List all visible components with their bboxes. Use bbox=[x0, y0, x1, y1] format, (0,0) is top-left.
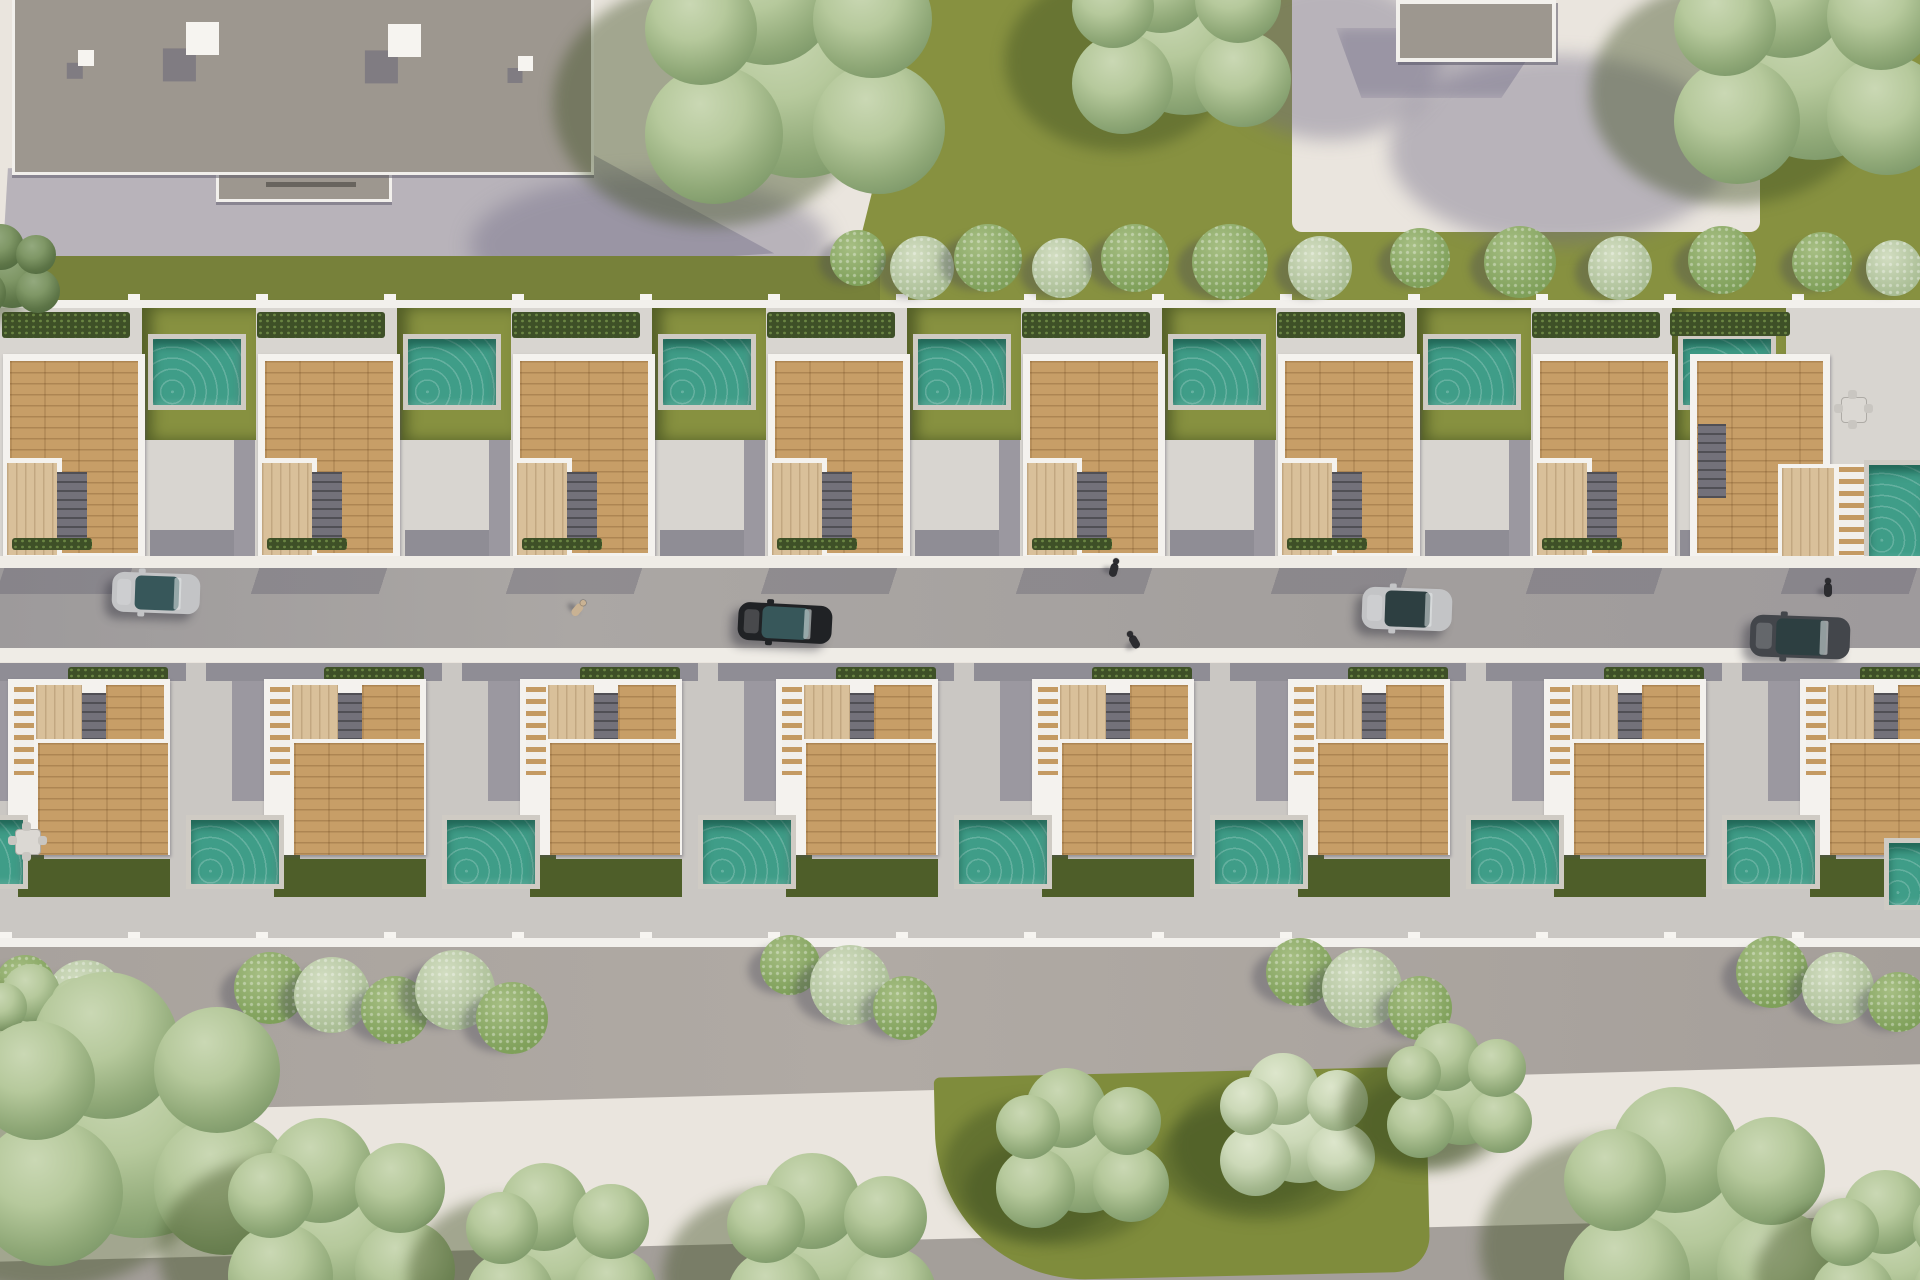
roof-stairs bbox=[1106, 693, 1130, 739]
roof-deck bbox=[546, 739, 680, 855]
roof-deck bbox=[1314, 739, 1448, 855]
villa-house bbox=[3, 354, 145, 560]
tree-foliage bbox=[1564, 1129, 1666, 1231]
tree bbox=[720, 1155, 950, 1280]
tree-foliage bbox=[16, 269, 60, 313]
bush-foliage bbox=[1792, 232, 1852, 292]
bush bbox=[1792, 232, 1852, 292]
garden-grass bbox=[1042, 859, 1194, 897]
tree-foliage bbox=[1811, 1198, 1879, 1266]
tree-foliage bbox=[1093, 1087, 1161, 1155]
swimming-pool bbox=[1722, 815, 1820, 889]
bush bbox=[1588, 236, 1652, 300]
tree-foliage bbox=[16, 235, 56, 275]
hedge-planter bbox=[767, 312, 895, 338]
tree bbox=[0, 225, 67, 335]
driveway bbox=[1170, 530, 1254, 558]
car-mirror bbox=[1390, 583, 1397, 588]
roof-stairs bbox=[1077, 472, 1107, 548]
tree bbox=[460, 1165, 670, 1280]
aerial-site-render bbox=[0, 0, 1920, 1280]
villa-unit-upper bbox=[765, 308, 1020, 560]
pergola bbox=[782, 687, 802, 775]
tree-foliage bbox=[1468, 1089, 1532, 1153]
tree-foliage bbox=[154, 1007, 280, 1133]
garden-grass bbox=[274, 859, 426, 897]
driveway bbox=[660, 530, 744, 558]
roof-stairs bbox=[1618, 693, 1642, 739]
patio-chair bbox=[1834, 404, 1843, 413]
tree-foliage bbox=[996, 1095, 1061, 1160]
pergola bbox=[1550, 687, 1570, 775]
villa-house bbox=[1544, 679, 1706, 855]
roof-deck bbox=[1898, 685, 1920, 739]
tree-foliage bbox=[1093, 1146, 1169, 1222]
villa-unit-upper bbox=[510, 308, 765, 560]
car-hood-highlight bbox=[1367, 594, 1382, 621]
villa-house bbox=[1023, 354, 1165, 560]
pergola bbox=[270, 687, 290, 775]
swimming-pool bbox=[1423, 334, 1521, 410]
car-mirror bbox=[1388, 628, 1395, 633]
tree bbox=[1805, 1172, 1920, 1280]
tree-foliage bbox=[1468, 1039, 1526, 1097]
roof-stairs bbox=[1362, 693, 1386, 739]
car-windshield bbox=[1424, 593, 1432, 627]
tree-foliage bbox=[844, 1176, 927, 1259]
rooftop-vent bbox=[186, 22, 219, 55]
roof-deck bbox=[874, 685, 932, 739]
bush-foliage bbox=[1192, 224, 1268, 300]
roof-stairs bbox=[1874, 693, 1898, 739]
sidewalk-bottom bbox=[0, 648, 1920, 662]
villa-house bbox=[264, 679, 426, 855]
bush bbox=[1288, 236, 1352, 300]
roof-stairs bbox=[567, 472, 597, 548]
villa-unit-upper bbox=[0, 308, 255, 560]
small-building-roof bbox=[1396, 0, 1556, 62]
villa-unit-lower bbox=[0, 663, 186, 947]
villa-unit-lower bbox=[442, 663, 698, 947]
roof-deck bbox=[1642, 685, 1700, 739]
roof-deck bbox=[290, 739, 424, 855]
person-head bbox=[1825, 578, 1831, 584]
patio-chair bbox=[22, 852, 31, 861]
roof-stairs bbox=[57, 472, 87, 548]
pergola bbox=[1038, 687, 1058, 775]
patio-chair bbox=[38, 836, 47, 845]
hedge-planter bbox=[1022, 312, 1150, 338]
bush bbox=[1192, 224, 1268, 300]
garden-grass bbox=[18, 859, 170, 897]
person-head bbox=[1112, 558, 1119, 565]
villa-unit-upper-corner bbox=[1660, 308, 1920, 560]
villa-house bbox=[1533, 354, 1675, 560]
roof-deck bbox=[106, 685, 164, 739]
roof-deck bbox=[802, 739, 936, 855]
villa-house bbox=[776, 679, 938, 855]
pergola bbox=[14, 687, 34, 775]
driveway bbox=[405, 530, 489, 558]
roof-stairs bbox=[822, 472, 852, 548]
roof-deck bbox=[362, 685, 420, 739]
lower-villa-row bbox=[0, 663, 1920, 947]
swimming-pool bbox=[403, 334, 501, 410]
swimming-pool bbox=[148, 334, 246, 410]
car-mirror bbox=[138, 611, 145, 616]
tree-foliage bbox=[1674, 58, 1800, 184]
villa-house bbox=[1288, 679, 1450, 855]
roof-deck bbox=[1570, 739, 1704, 855]
swimming-pool bbox=[1210, 815, 1308, 889]
roof-stairs bbox=[1587, 472, 1617, 548]
villa-unit-lower bbox=[698, 663, 954, 947]
roof-stairs bbox=[338, 693, 362, 739]
patio-chair bbox=[22, 822, 31, 831]
villa-house bbox=[520, 679, 682, 855]
bush bbox=[873, 976, 937, 1040]
tree-foliage bbox=[1220, 1077, 1278, 1135]
rooftop-vent bbox=[78, 50, 94, 66]
bush-foliage bbox=[1390, 228, 1450, 288]
tree-foliage bbox=[573, 1184, 649, 1260]
building-roof-detail bbox=[266, 182, 356, 187]
car-windshield bbox=[173, 578, 181, 610]
entry-path bbox=[232, 681, 264, 801]
rooftop-vent bbox=[518, 56, 533, 71]
bush-foliage bbox=[1032, 238, 1092, 298]
tree-foliage bbox=[466, 1192, 537, 1263]
roof-deck bbox=[1386, 685, 1444, 739]
roof-stairs bbox=[82, 693, 106, 739]
hedge-planter bbox=[1532, 312, 1660, 338]
villa-unit-lower bbox=[1466, 663, 1722, 947]
car-hood-highlight bbox=[743, 609, 759, 634]
hedge-planter bbox=[1670, 312, 1790, 336]
pergola bbox=[1806, 687, 1826, 775]
street-house-shadows bbox=[0, 568, 1920, 594]
patio-table-set bbox=[10, 824, 44, 858]
bush-foliage bbox=[1101, 224, 1169, 292]
car-mirror bbox=[765, 640, 772, 645]
swimming-pool bbox=[1168, 334, 1266, 410]
car-mirror bbox=[1779, 656, 1786, 661]
person-body bbox=[1824, 583, 1832, 597]
villa-house bbox=[768, 354, 910, 560]
bush-foliage bbox=[1484, 226, 1556, 298]
bush-foliage bbox=[1868, 972, 1920, 1032]
car-mirror bbox=[139, 568, 146, 573]
driveway bbox=[150, 530, 234, 558]
swimming-pool bbox=[186, 815, 284, 889]
roof-stairs bbox=[1332, 472, 1362, 548]
garden-grass bbox=[786, 859, 938, 897]
villa-house bbox=[1278, 354, 1420, 560]
front-hedge bbox=[267, 538, 347, 550]
villa-house bbox=[258, 354, 400, 560]
entry-path bbox=[744, 681, 776, 801]
bush-foliage bbox=[1588, 236, 1652, 300]
car-windshield bbox=[1819, 621, 1828, 655]
pedestrian bbox=[1822, 578, 1834, 600]
patio-chair bbox=[1848, 390, 1857, 399]
roof-stairs bbox=[1698, 424, 1726, 498]
wood-panel bbox=[1778, 464, 1838, 560]
tree-foliage bbox=[228, 1153, 313, 1238]
front-hedge bbox=[777, 538, 857, 550]
tree bbox=[1065, 0, 1305, 175]
villa-unit-lower bbox=[954, 663, 1210, 947]
villa-unit-upper bbox=[255, 308, 510, 560]
bush bbox=[1390, 228, 1450, 288]
swimming-pool bbox=[913, 334, 1011, 410]
tree-foliage bbox=[1387, 1091, 1454, 1158]
entry-path bbox=[1512, 681, 1544, 801]
villa-house bbox=[513, 354, 655, 560]
tree-foliage bbox=[1387, 1046, 1441, 1100]
tree-foliage bbox=[727, 1185, 805, 1263]
villa-house bbox=[1032, 679, 1194, 855]
swimming-pool bbox=[1864, 460, 1920, 564]
garden-grass bbox=[530, 859, 682, 897]
bush-foliage bbox=[1688, 226, 1756, 294]
roof-deck bbox=[1058, 739, 1192, 855]
roof-stairs bbox=[312, 472, 342, 548]
tree bbox=[1665, 0, 1920, 235]
front-hedge bbox=[1287, 538, 1367, 550]
bush-foliage bbox=[476, 982, 548, 1054]
tree-foliage bbox=[1220, 1125, 1291, 1196]
hedge-planter bbox=[1277, 312, 1405, 338]
building-roof-joint bbox=[219, 0, 383, 172]
front-hedge bbox=[1032, 538, 1112, 550]
garden-grass bbox=[1554, 859, 1706, 897]
patio-chair bbox=[1848, 420, 1857, 429]
upper-villa-row bbox=[0, 308, 1920, 560]
bush bbox=[1688, 226, 1756, 294]
villa-unit-lower bbox=[186, 663, 442, 947]
lower-fence-posts bbox=[0, 932, 1920, 938]
lower-fence bbox=[0, 938, 1920, 947]
rooftop-vent bbox=[388, 24, 421, 57]
driveway bbox=[915, 530, 999, 558]
tree bbox=[990, 1070, 1180, 1260]
swimming-pool bbox=[698, 815, 796, 889]
villa-unit-lower bbox=[1210, 663, 1466, 947]
car-hood-highlight bbox=[117, 579, 132, 605]
villa-unit-upper bbox=[1020, 308, 1275, 560]
garden-grass bbox=[1298, 859, 1450, 897]
tree-foliage bbox=[996, 1148, 1076, 1228]
hedge-planter bbox=[257, 312, 385, 338]
swimming-pool bbox=[954, 815, 1052, 889]
entry-path bbox=[1256, 681, 1288, 801]
entry-path bbox=[1000, 681, 1032, 801]
bush bbox=[476, 982, 548, 1054]
bush bbox=[1032, 238, 1092, 298]
entry-path bbox=[488, 681, 520, 801]
swimming-pool bbox=[1466, 815, 1564, 889]
front-hedge bbox=[12, 538, 92, 550]
car-mirror bbox=[767, 599, 774, 604]
roof-deck bbox=[1130, 685, 1188, 739]
front-hedge bbox=[1542, 538, 1622, 550]
patio-chair bbox=[1864, 404, 1873, 413]
front-hedge bbox=[522, 538, 602, 550]
person-body bbox=[1108, 562, 1119, 578]
bush bbox=[1868, 972, 1920, 1032]
swimming-pool bbox=[1884, 838, 1920, 910]
car-mirror bbox=[1781, 611, 1788, 616]
bush-foliage bbox=[873, 976, 937, 1040]
patio-chair bbox=[8, 836, 17, 845]
pergola bbox=[526, 687, 546, 775]
tree-foliage bbox=[355, 1143, 445, 1233]
car bbox=[1361, 586, 1452, 631]
roof-deck bbox=[34, 739, 168, 855]
sidewalk-top bbox=[0, 556, 1920, 568]
car bbox=[111, 571, 200, 614]
bush-foliage bbox=[1866, 240, 1920, 296]
swimming-pool bbox=[658, 334, 756, 410]
roof-stairs bbox=[594, 693, 618, 739]
bush bbox=[1866, 240, 1920, 296]
bush bbox=[1484, 226, 1556, 298]
roof-stairs bbox=[850, 693, 874, 739]
entry-path bbox=[1768, 681, 1800, 801]
patio-table-set bbox=[1836, 392, 1870, 426]
roof-deck bbox=[618, 685, 676, 739]
driveway bbox=[1425, 530, 1509, 558]
tree-foliage bbox=[1195, 31, 1291, 127]
tree-foliage bbox=[813, 62, 945, 194]
swimming-pool bbox=[442, 815, 540, 889]
entry-path bbox=[0, 681, 8, 801]
tree bbox=[635, 0, 965, 260]
tree-foliage bbox=[1072, 33, 1173, 134]
car-hood-highlight bbox=[1756, 622, 1773, 649]
car bbox=[737, 602, 833, 645]
tree-foliage bbox=[645, 65, 784, 204]
villa-unit-upper bbox=[1275, 308, 1530, 560]
car bbox=[1749, 614, 1850, 659]
hedge-planter bbox=[512, 312, 640, 338]
bush bbox=[1101, 224, 1169, 292]
upper-fence bbox=[0, 300, 1920, 308]
tree bbox=[1382, 1025, 1542, 1185]
bush-foliage bbox=[1288, 236, 1352, 300]
pergola bbox=[1294, 687, 1314, 775]
